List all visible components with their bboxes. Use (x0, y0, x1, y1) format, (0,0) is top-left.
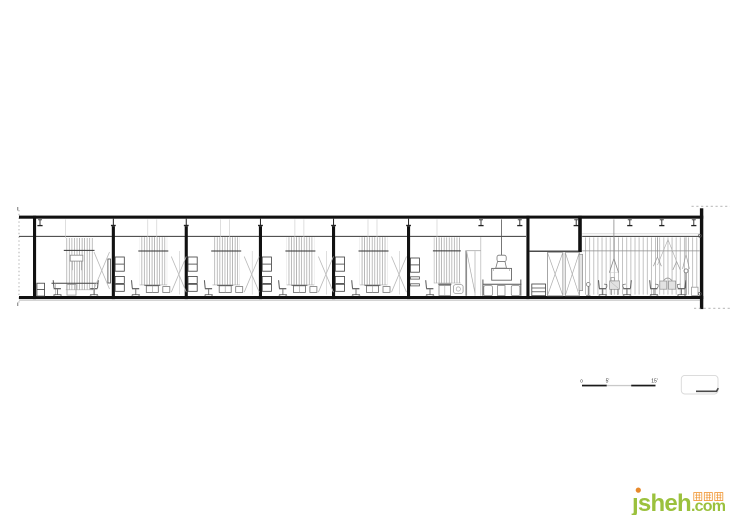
svg-text:ȷsheh: ȷsheh (631, 490, 691, 515)
svg-text:5': 5' (606, 379, 610, 385)
svg-text:.com: .com (691, 498, 726, 515)
svg-text:15': 15' (651, 379, 658, 385)
svg-text:0: 0 (580, 379, 583, 384)
